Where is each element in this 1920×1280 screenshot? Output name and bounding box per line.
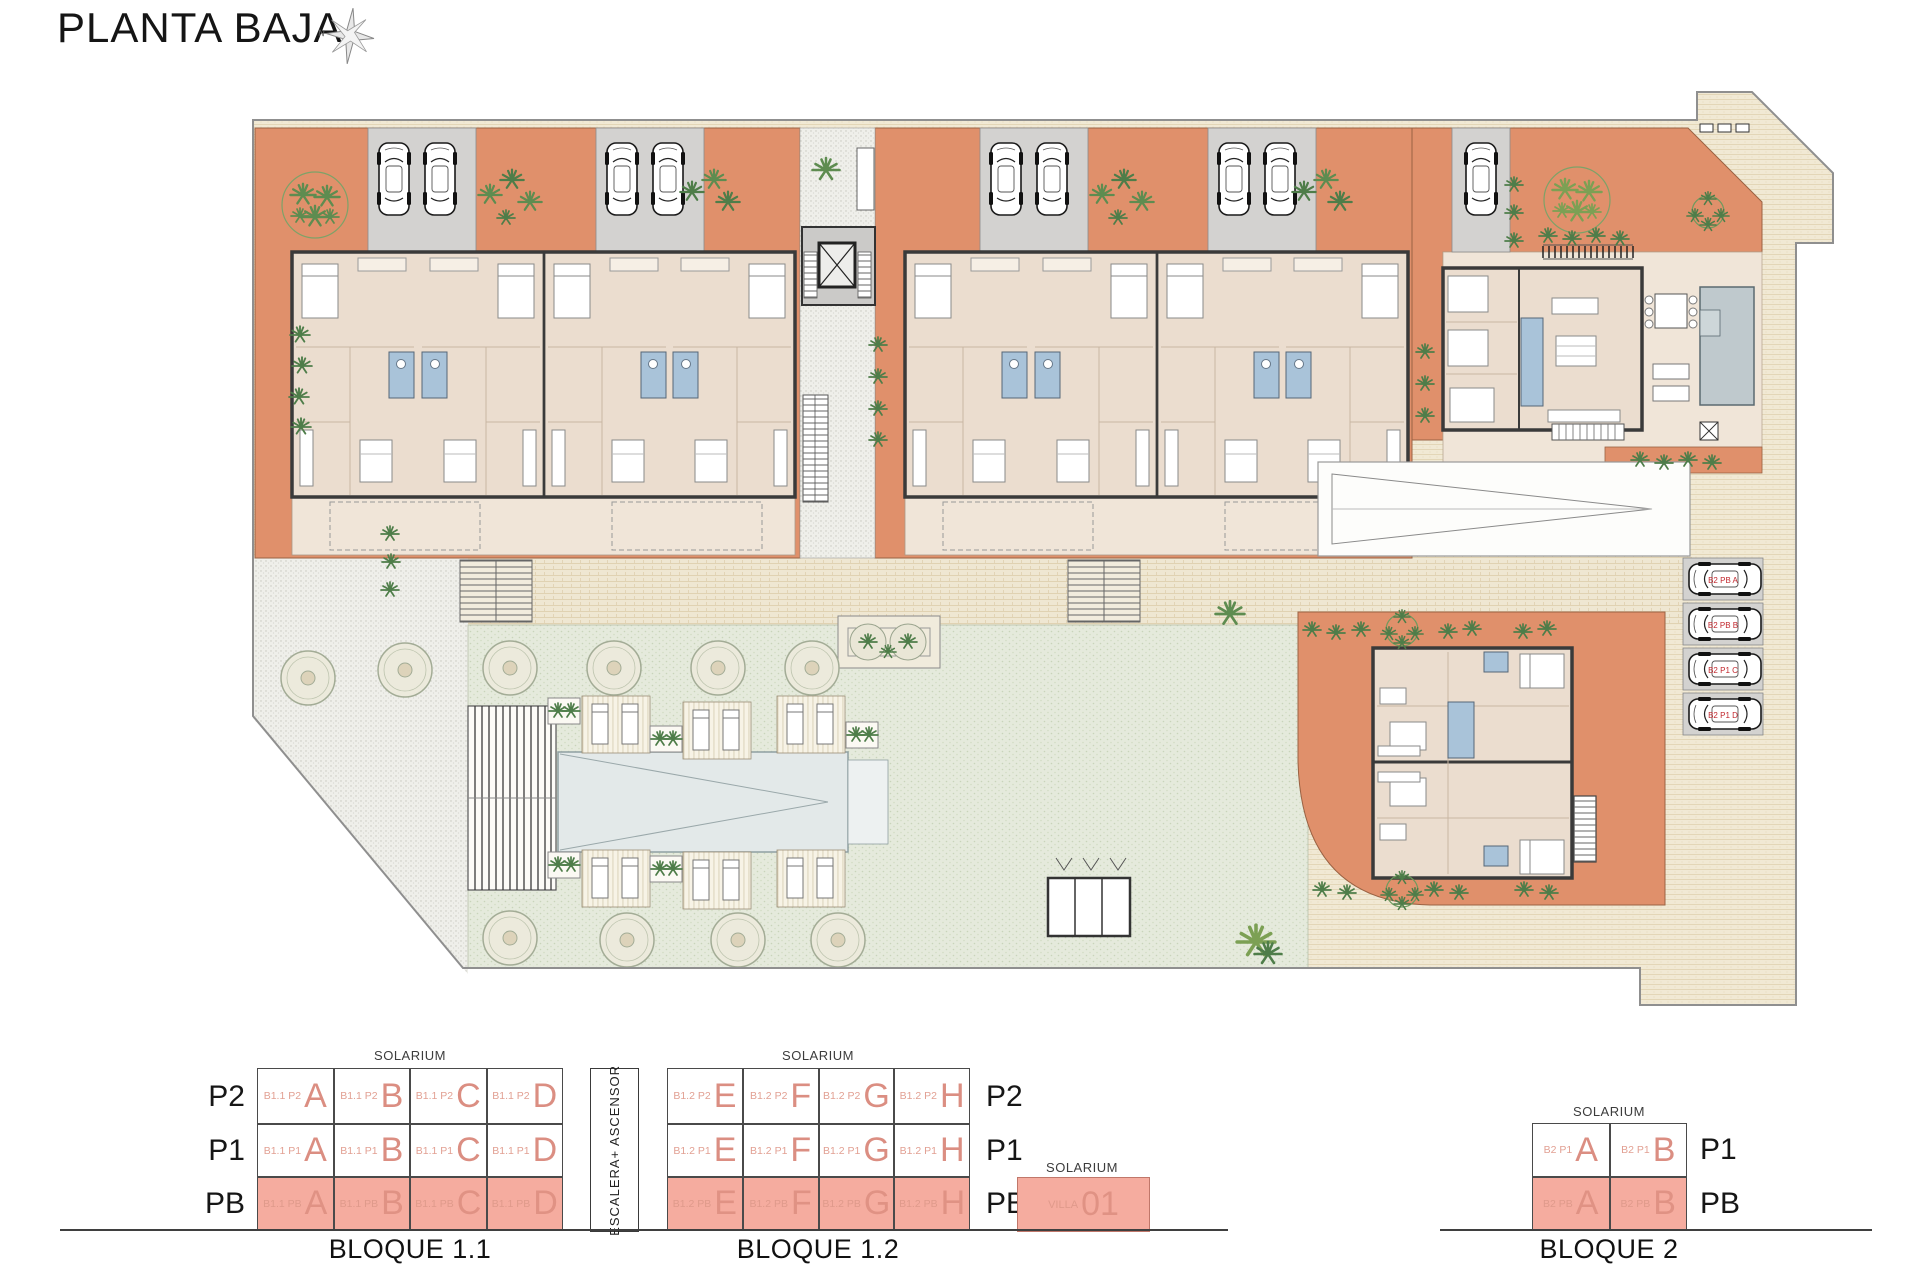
bloque-1-2-building	[905, 252, 1408, 497]
block-name-bloque-2: BLOQUE 2	[1449, 1234, 1769, 1265]
solarium-label-b2: SOLARIUM	[1499, 1104, 1719, 1119]
compass-icon: N	[307, 2, 393, 72]
unit-cell: B1.2 P2E	[667, 1068, 743, 1124]
unit-cell: B1.2 P1G	[819, 1124, 895, 1177]
bloque-2-building	[1373, 648, 1596, 878]
floor-plan-sheet: B2 PB A B2 PB B B2 P1 C B2 P1 D	[0, 0, 1920, 1280]
unit-cell: B1.1 PBB	[334, 1177, 411, 1230]
parking-car-label: B2 P1 D	[1708, 711, 1738, 720]
unit-cell: B1.1 P1C	[410, 1124, 487, 1177]
unit-cell: B1.2 P1E	[667, 1124, 743, 1177]
unit-cell: B1.1 P1B	[334, 1124, 411, 1177]
floor-label-b11-pb: PB	[183, 1187, 245, 1221]
villa-building	[1443, 245, 1642, 430]
unit-cell: B1.2 PBF	[743, 1177, 819, 1230]
central-planter	[838, 616, 940, 668]
unit-cell: B1.1 P1D	[487, 1124, 564, 1177]
unit-cell: B2 P1A	[1532, 1123, 1610, 1177]
floor-label-b2-pb: PB	[1700, 1187, 1740, 1221]
unit-cell: B1.2 PBG	[819, 1177, 895, 1230]
unit-cell: B2 PBA	[1532, 1177, 1610, 1230]
parking-car-label: B2 PB B	[1708, 621, 1738, 630]
parking-car-label: B2 PB A	[1708, 576, 1738, 585]
unit-cell: B1.2 P2F	[743, 1068, 819, 1124]
villa-cell: VILLA01	[1017, 1177, 1150, 1232]
unit-cell: B1.2 P1F	[743, 1124, 819, 1177]
block-name-bloque-1-1: BLOQUE 1.1	[250, 1234, 570, 1265]
solarium-label-b12: SOLARIUM	[708, 1048, 928, 1063]
pool	[558, 752, 888, 852]
floor-label-b11-p1: P1	[183, 1134, 245, 1168]
stair-elevator-core	[800, 128, 875, 558]
unit-cell: B1.2 PBE	[667, 1177, 743, 1230]
legend-grid-bloque-1-1: B1.1 P2A B1.1 P2B B1.1 P2C B1.1 P2D B1.1…	[257, 1068, 563, 1230]
unit-cell: B2 PBB	[1610, 1177, 1688, 1230]
solarium-label-villa: SOLARIUM	[972, 1160, 1192, 1175]
floor-label-b11-p2: P2	[183, 1080, 245, 1114]
unit-cell: B1.1 P2D	[487, 1068, 564, 1124]
block-name-bloque-1-2: BLOQUE 1.2	[658, 1234, 978, 1265]
solarium-label-b11: SOLARIUM	[300, 1048, 520, 1063]
unit-cell: B1.1 P2C	[410, 1068, 487, 1124]
page-title: PLANTA BAJA	[57, 4, 343, 52]
pergola	[468, 706, 556, 890]
unit-cell: B1.1 P2A	[257, 1068, 334, 1124]
bloque-1-1-building	[292, 252, 795, 497]
legend-grid-bloque-2: B2 P1A B2 P1B B2 PBA B2 PBB	[1532, 1123, 1687, 1230]
unit-cell: B1.1 PBA	[257, 1177, 334, 1230]
legend-grid-bloque-1-2: B1.2 P2E B1.2 P2F B1.2 P2G B1.2 P2H B1.2…	[667, 1068, 970, 1230]
ground-line-right	[1440, 1229, 1872, 1231]
parking-car-label: B2 P1 C	[1708, 666, 1738, 675]
floor-label-b2-p1: P1	[1700, 1133, 1737, 1167]
unit-cell: B2 P1B	[1610, 1123, 1688, 1177]
unit-cell: B1.2 PBH	[894, 1177, 970, 1230]
unit-cell: B1.2 P1H	[894, 1124, 970, 1177]
unit-cell: B1.1 P2B	[334, 1068, 411, 1124]
unit-cell: B1.2 P2H	[894, 1068, 970, 1124]
stair-elevator-legend: ESCALERA+ ASCENSOR	[590, 1068, 639, 1232]
villa-pool	[1700, 287, 1754, 405]
access-ramp	[1318, 462, 1690, 556]
gravel-courtyard	[253, 556, 468, 974]
floor-label-b12-p2: P2	[986, 1080, 1023, 1114]
unit-cell: B1.1 P1A	[257, 1124, 334, 1177]
ground-line-left	[60, 1229, 1228, 1231]
unit-cell: B1.1 PBD	[487, 1177, 564, 1230]
compass-north-label: N	[318, 28, 326, 39]
unit-cell: B1.2 P2G	[819, 1068, 895, 1124]
unit-cell: B1.1 PBC	[410, 1177, 487, 1230]
